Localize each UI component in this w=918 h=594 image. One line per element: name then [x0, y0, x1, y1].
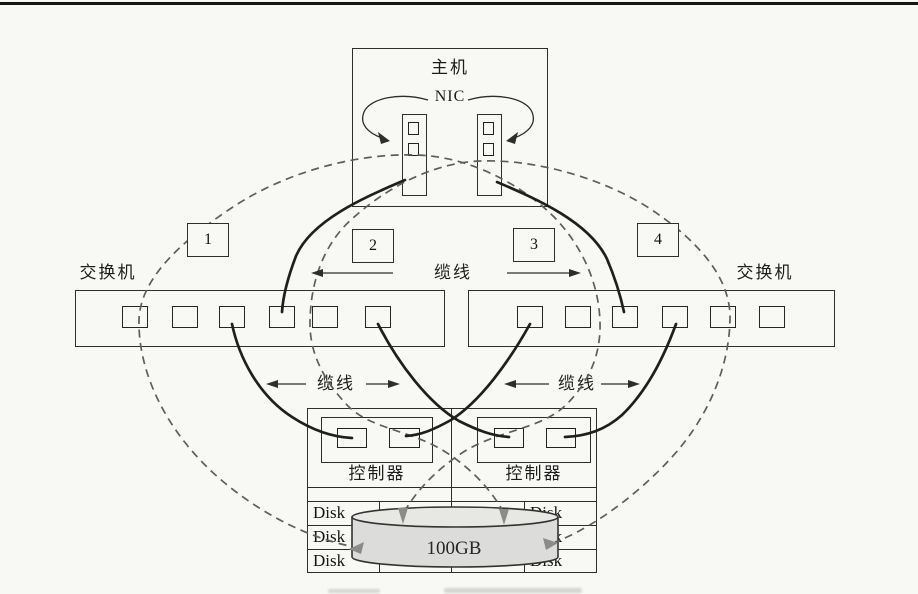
path-label-box-1: 1: [187, 223, 229, 257]
path-label-box-4: 4: [637, 223, 679, 257]
path-label-box-2: 2: [352, 229, 394, 263]
path-label-box-3: 3: [513, 228, 555, 262]
scanned-diagram-page: 主机 NIC 交换机 交换机 缆线 缆线 缆线: [0, 0, 918, 594]
